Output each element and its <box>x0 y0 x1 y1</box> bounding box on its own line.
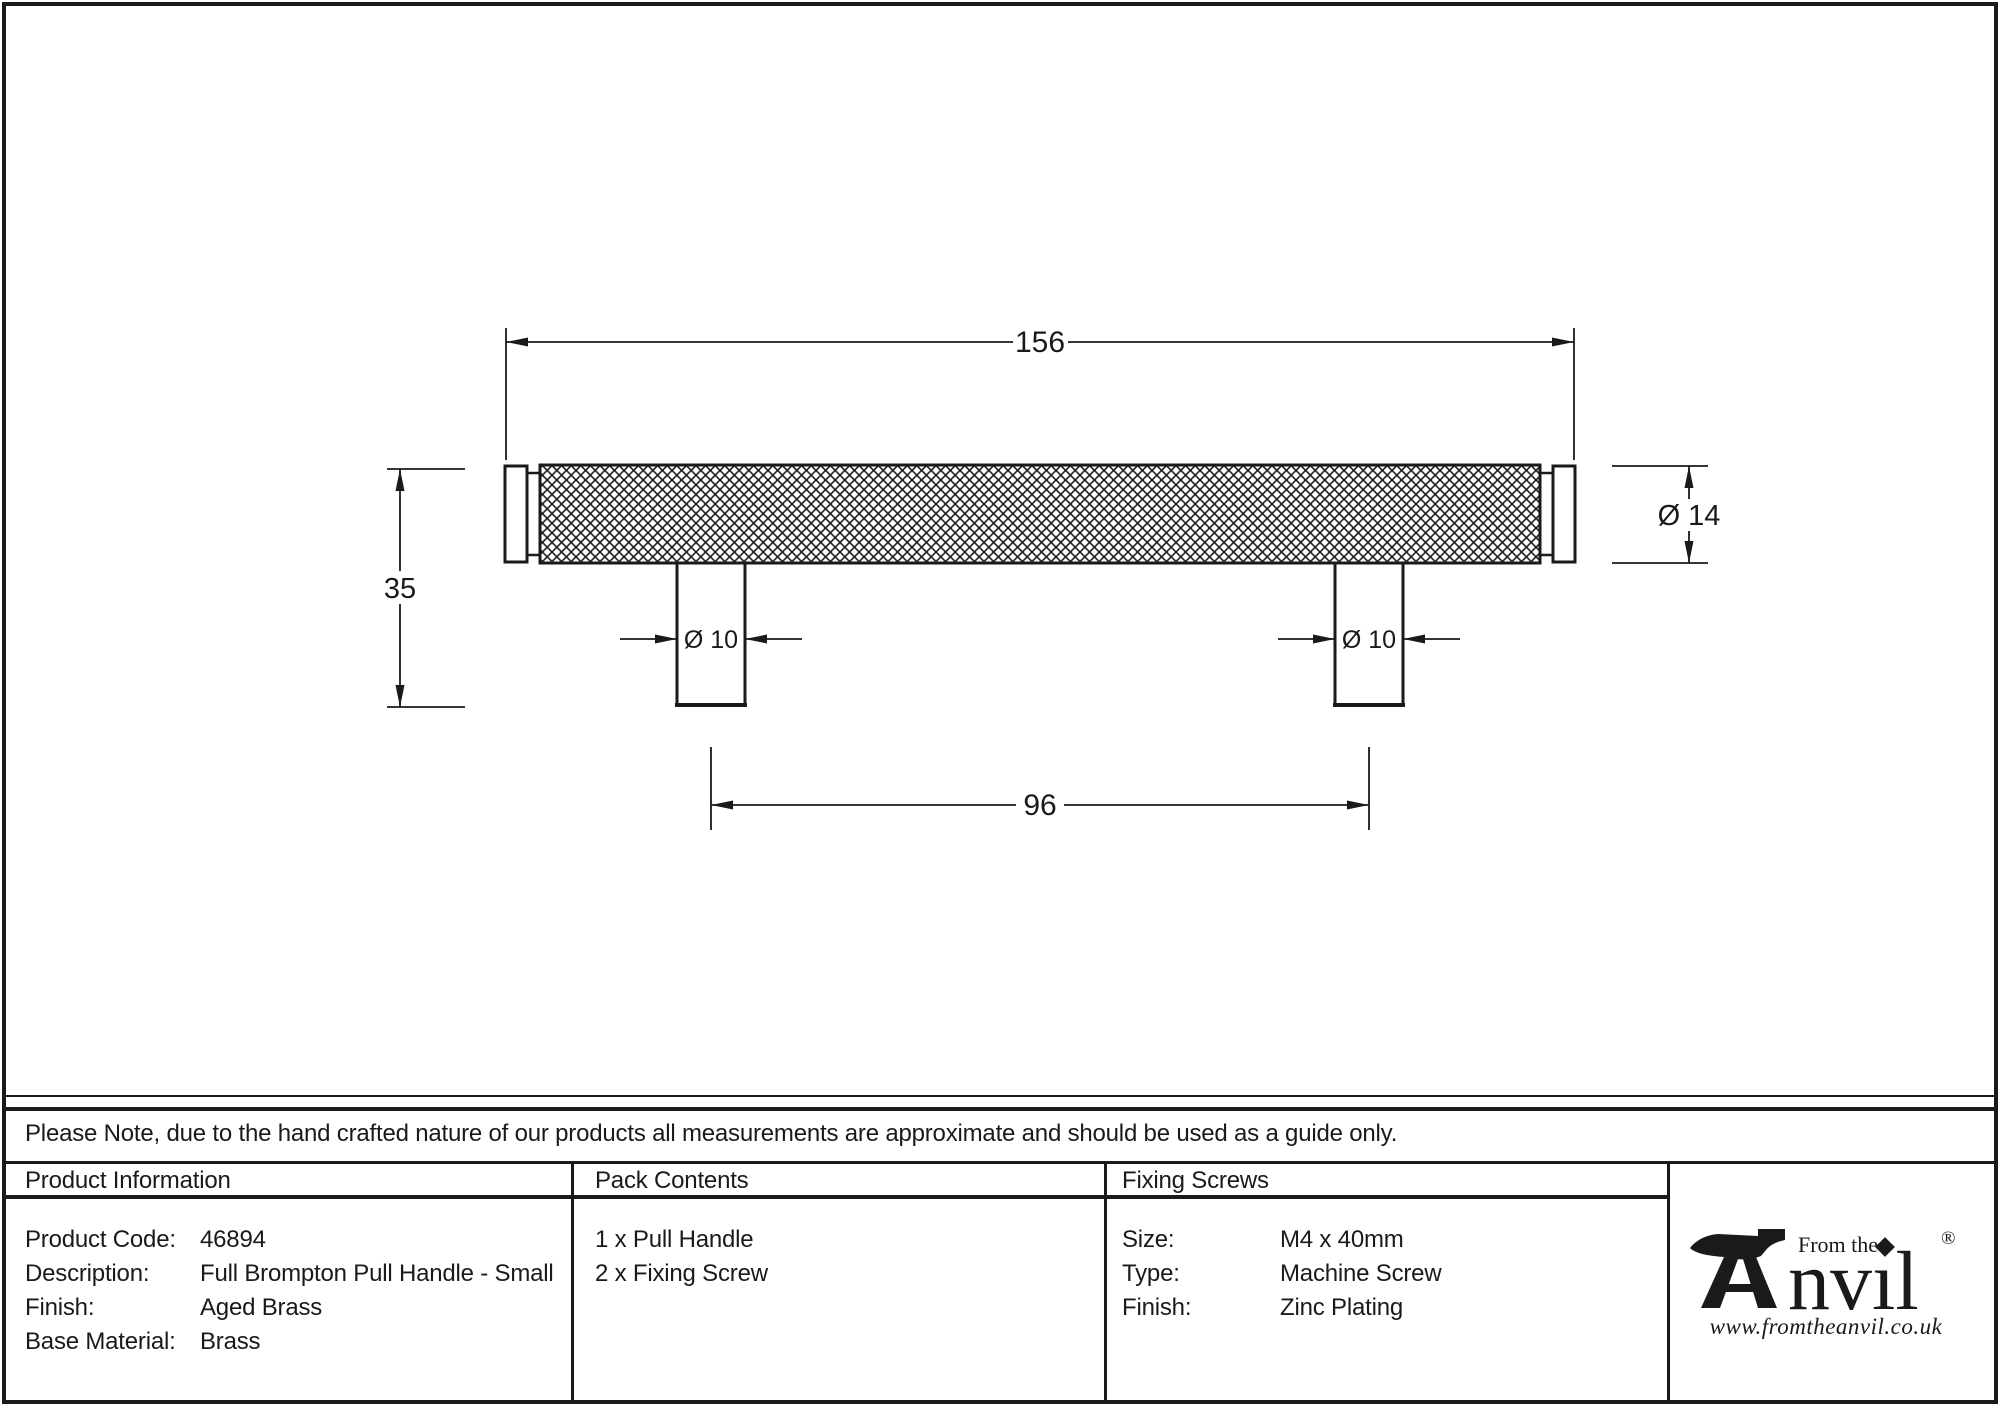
table-column-rule-3 <box>1667 1161 1670 1400</box>
dimension-left-post-diameter: Ø 10 <box>620 626 802 654</box>
product-code-label: Product Code: <box>25 1226 176 1254</box>
finish-label: Finish: <box>25 1294 94 1322</box>
screw-finish-label: Finish: <box>1122 1294 1191 1322</box>
knurled-bar <box>540 465 1540 563</box>
finish-value: Aged Brass <box>200 1294 322 1322</box>
header-fixing-screws: Fixing Screws <box>1122 1167 1269 1195</box>
base-material-label: Base Material: <box>25 1328 176 1356</box>
note-row-top-rule <box>6 1107 1994 1111</box>
dim-label-dia10-left: Ø 10 <box>684 626 738 654</box>
description-label: Description: <box>25 1260 149 1288</box>
dim-label-dia14: Ø 14 <box>1658 500 1721 532</box>
dimension-overall-height: 35 <box>377 469 465 707</box>
dim-label-156: 156 <box>1015 326 1065 359</box>
dim-label-96: 96 <box>1023 789 1056 822</box>
base-material-value: Brass <box>200 1328 260 1356</box>
logo-website-text: www.fromtheanvil.co.uk <box>1688 1314 1964 1340</box>
technical-drawing: 156 Ø 14 35 Ø 10 <box>0 0 2000 1100</box>
dimension-bar-diameter: Ø 14 <box>1612 466 1722 563</box>
product-code-value: 46894 <box>200 1226 266 1254</box>
pack-item-1: 1 x Pull Handle <box>595 1226 753 1254</box>
registered-trademark-symbol: ® <box>1941 1228 1955 1250</box>
spec-sheet-page: 156 Ø 14 35 Ø 10 <box>0 0 2000 1406</box>
dimension-right-post-diameter: Ø 10 <box>1278 626 1460 654</box>
table-header-bottom-rule <box>6 1195 1667 1199</box>
screw-size-label: Size: <box>1122 1226 1174 1254</box>
drawing-area-bottom-rule <box>6 1095 1994 1097</box>
measurement-disclaimer-note: Please Note, due to the hand crafted nat… <box>25 1120 1397 1148</box>
dimension-fixing-centres: 96 <box>711 747 1369 830</box>
table-top-rule <box>6 1161 1994 1164</box>
dimension-overall-length: 156 <box>506 326 1574 460</box>
dim-label-35: 35 <box>384 573 416 605</box>
header-pack-contents: Pack Contents <box>595 1167 748 1195</box>
screw-type-label: Type: <box>1122 1260 1180 1288</box>
description-value: Full Brompton Pull Handle - Small <box>200 1260 554 1288</box>
pack-item-2: 2 x Fixing Screw <box>595 1260 768 1288</box>
table-column-rule-2 <box>1104 1161 1107 1400</box>
dim-label-dia10-right: Ø 10 <box>1342 626 1396 654</box>
screw-type-value: Machine Screw <box>1280 1260 1441 1288</box>
right-end-cap <box>1540 466 1575 562</box>
header-product-information: Product Information <box>25 1167 231 1195</box>
from-the-anvil-logo: From the nvıl ® www.fromtheanvil.co.uk <box>1688 1226 1964 1344</box>
left-end-cap <box>505 466 540 562</box>
logo-brand-text: nvıl <box>1788 1240 1919 1324</box>
anvil-icon <box>1688 1228 1788 1312</box>
screw-size-value: M4 x 40mm <box>1280 1226 1404 1254</box>
screw-finish-value: Zinc Plating <box>1280 1294 1403 1322</box>
table-column-rule-1 <box>571 1161 574 1400</box>
